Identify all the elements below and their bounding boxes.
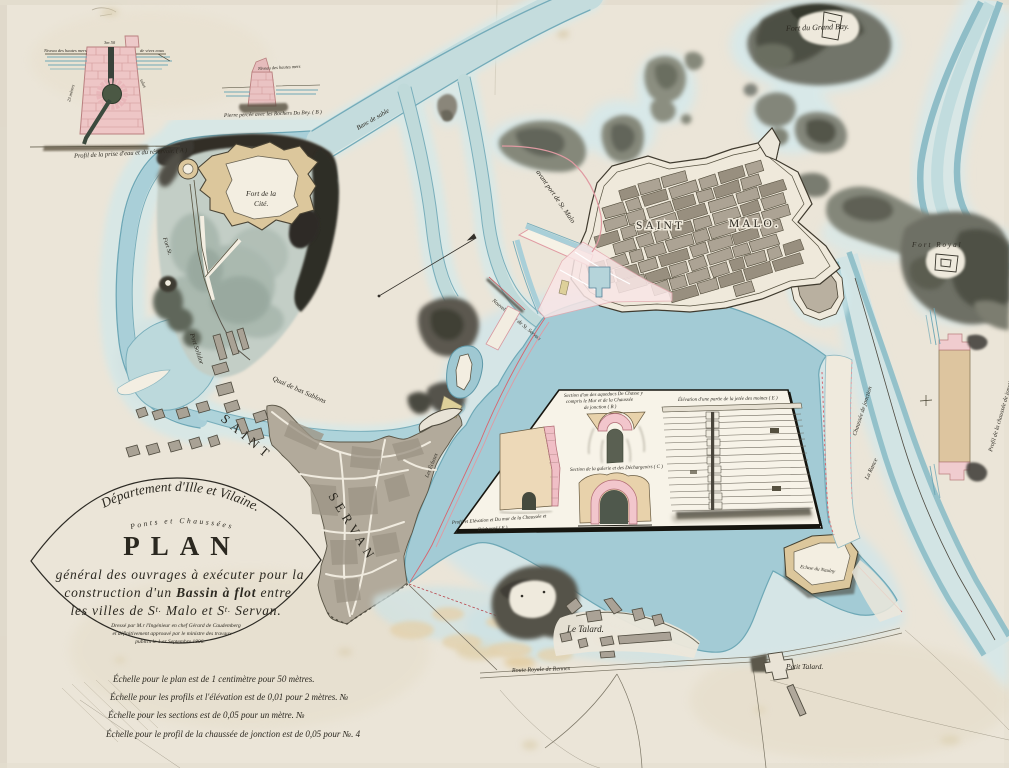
svg-text:PLAN: PLAN <box>123 531 241 561</box>
svg-text:Cité.: Cité. <box>254 199 268 208</box>
svg-text:Le Talard.: Le Talard. <box>566 624 604 634</box>
svg-text:Petit Talard.: Petit Talard. <box>785 662 823 671</box>
svg-text:SAINT: SAINT <box>636 220 685 232</box>
svg-text:Fort de la: Fort de la <box>245 189 276 198</box>
svg-text:Échelle pour le plan est de 1: Échelle pour le plan est de 1 centimètre… <box>112 674 315 684</box>
svg-text:3m 50: 3m 50 <box>104 40 116 45</box>
svg-text:Dressé par M.r l'Ingénieur en: Dressé par M.r l'Ingénieur en chef Gérar… <box>110 622 241 629</box>
svg-text:MALO.: MALO. <box>729 218 781 230</box>
svg-text:les villes de St. Malo et St.: les villes de St. Malo et St. Servan. <box>70 603 281 618</box>
svg-text:Échelle pour les sections est: Échelle pour les sections est de 0,05 po… <box>107 710 305 720</box>
svg-text:Échelle pour le profil de la c: Échelle pour le profil de la chaussée de… <box>105 729 361 739</box>
svg-text:de vives eaux: de vives eaux <box>140 48 164 53</box>
svg-text:publics le 1.er Septembre 1: publics le 1.er Septembre 1806. <box>134 639 204 645</box>
svg-text:Échelle pour les profils et l': Échelle pour les profils et l'élévation … <box>109 692 348 702</box>
svg-text:Niveau des hautes mers: Niveau des hautes mers <box>43 48 87 53</box>
svg-text:général des ouvrages à exécute: général des ouvrages à exécuter pour la <box>56 567 305 582</box>
svg-text:Fort Royal: Fort Royal <box>911 241 963 249</box>
svg-text:construction d'un Bassin à flo: construction d'un Bassin à flot entre <box>64 585 291 600</box>
svg-text:et définitivement approuvé par: et définitivement approuvé par le minist… <box>113 630 232 637</box>
